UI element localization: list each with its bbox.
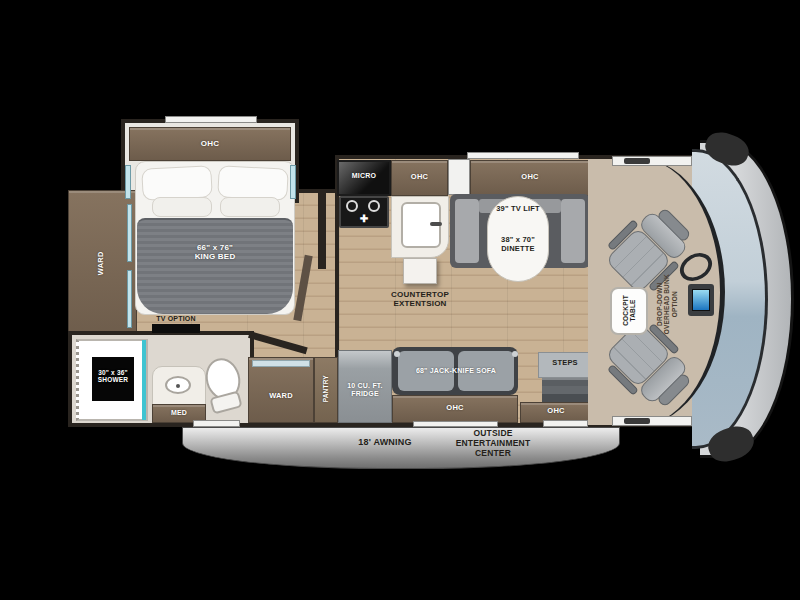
floorplan-canvas: 18' AWNING OUTSIDE ENTERTAINMENT CENTER … [0,0,800,600]
ward-window-top [127,204,132,262]
bed-pillow-1 [141,165,213,201]
dinette-bench-right [561,199,585,263]
steps-label: STEPS [538,359,592,368]
tv-lift-label: 39" TV LIFT [478,205,558,214]
burner-right [368,200,380,212]
bed-pillow-4 [220,197,280,217]
med-label: MED [152,409,206,417]
kitchen-faucet [430,222,442,226]
bed-pillow-3 [152,197,212,217]
patio-marker [413,421,498,427]
sofa-hinge-left [394,351,400,357]
steps-lower [542,378,588,402]
shower-accent [142,340,146,420]
bedroom-ohc-label: OHC [175,139,245,148]
entry-ohc-label: OHC [520,407,592,416]
med-sink-drain [176,384,180,388]
cab-door-handle-bottom [624,418,650,424]
sofa-hinge-right [512,351,518,357]
bedroom-divider-wall [318,191,326,269]
sofa-ohc-label: OHC [392,404,518,413]
burner-left [346,200,358,212]
kitchen-window [448,159,470,195]
bed-pillow-2 [217,165,289,201]
awning-label: 18' AWNING [320,437,450,447]
fridge-label: 10 CU. FT. FRIDGE [338,382,392,398]
entertainment-center-label: OUTSIDE ENTERTAINMENT CENTER [438,429,548,458]
dinette-bench-left [455,199,479,263]
awning-bar [182,427,620,469]
pantry-label: PANTRY [322,349,329,429]
dinette-label: 38" x 70" DINETTE [478,236,558,253]
countertop-extension [403,258,437,284]
burner-knob: ✚ [354,213,374,225]
cockpit-table-label: COCKPIT TABLE [622,280,637,340]
dash-monitor [692,289,710,311]
bedroom-slide-window [165,116,257,123]
ward-left-label: WARD [97,223,106,303]
dinette-ohc-label: OHC [470,173,590,182]
dinette-window [467,152,579,159]
tv-option-unit [152,324,200,333]
bed-label: 66" x 76" KING BED [155,243,275,261]
bath-door-marker [193,420,240,427]
bunk-option-label: DROP-DOWN OVERHEAD BUNK OPTION [656,249,678,359]
sofa-label: 68" JACK-KNIFE SOFA [396,367,516,375]
bedroom-window-right [290,165,296,199]
ward-rear-top [252,360,310,367]
ward-rear-label: WARD [248,392,314,401]
countertop-extension-label: COUNTERTOP EXTENTSION [368,290,472,308]
bed-blanket [137,218,293,314]
tv-option-label: TV OPTION [136,315,216,323]
cab-door-handle-top [624,158,650,164]
shower-label: 30" x 36" SHOWER [92,369,134,384]
micro-label: MICRO [337,172,391,180]
bedroom-window-left [125,165,131,199]
kitchen-ohc-label: OHC [391,173,448,182]
ward-window-bottom [127,270,132,328]
entry-door-marker [543,420,588,427]
